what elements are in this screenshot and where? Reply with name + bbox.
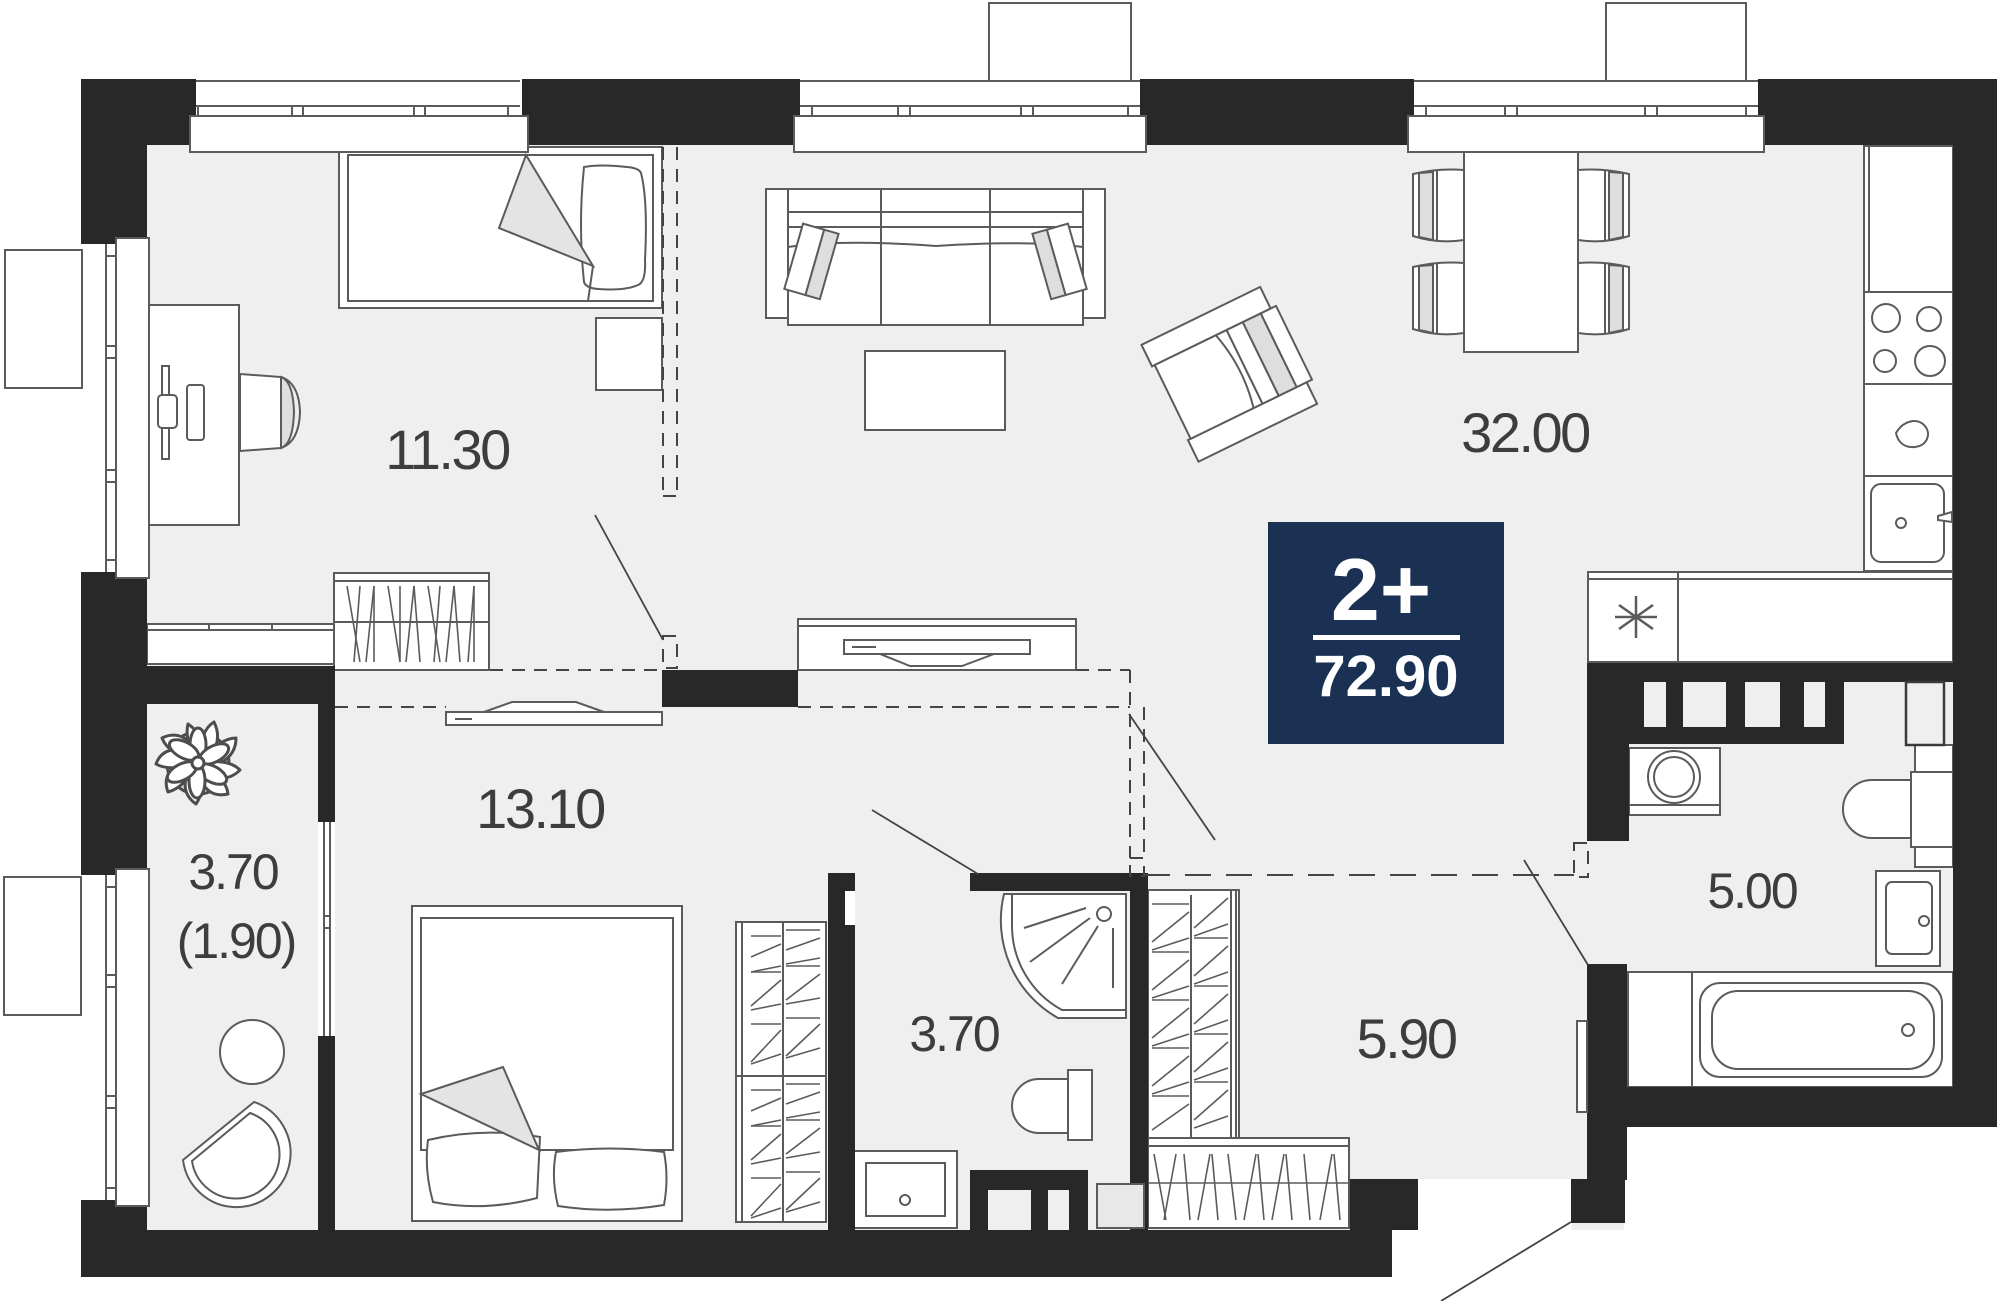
svg-text:3.70: 3.70: [188, 844, 278, 900]
svg-text:72.90: 72.90: [1313, 644, 1458, 709]
svg-text:5.90: 5.90: [1357, 1007, 1456, 1070]
svg-text:5.00: 5.00: [1707, 863, 1797, 919]
svg-text:2+: 2+: [1331, 540, 1431, 639]
svg-text:(1.90): (1.90): [177, 913, 296, 969]
svg-text:11.30: 11.30: [385, 418, 509, 481]
svg-text:13.10: 13.10: [476, 777, 604, 840]
svg-text:3.70: 3.70: [909, 1006, 999, 1062]
svg-text:32.00: 32.00: [1461, 401, 1589, 464]
